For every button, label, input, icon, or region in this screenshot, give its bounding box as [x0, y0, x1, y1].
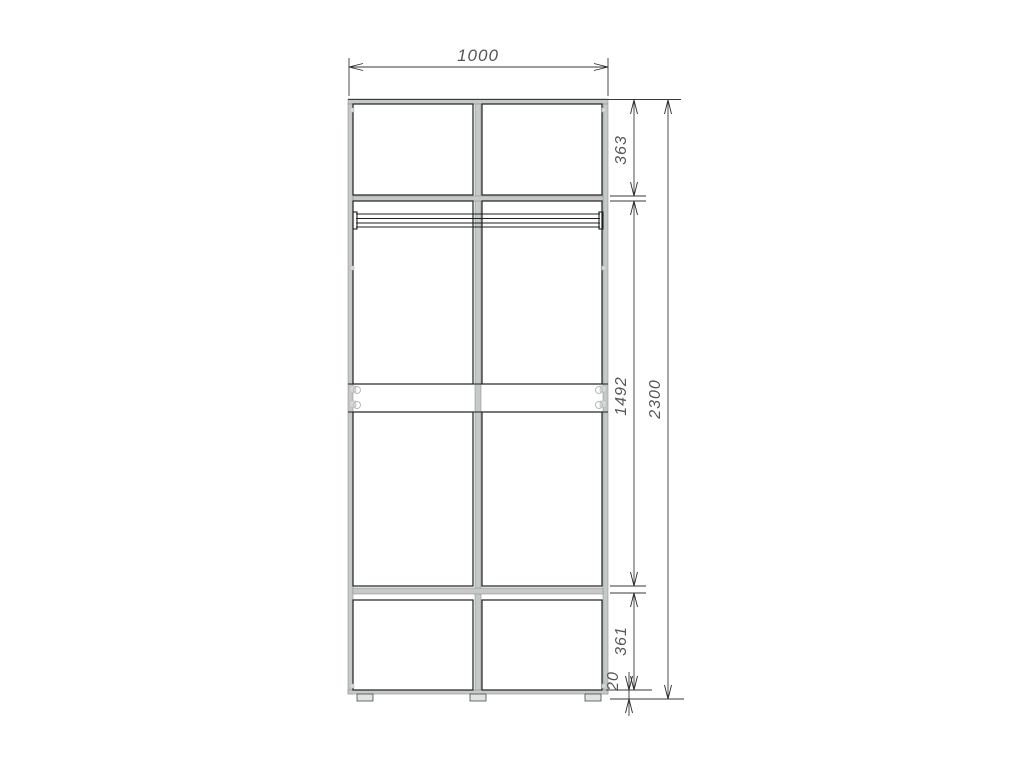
foot-center — [470, 694, 486, 701]
carcass-left-side-panel — [348, 104, 353, 694]
carcass-center-divider — [475, 104, 481, 690]
door-panel-top-right — [482, 104, 602, 195]
carcass-bottom-shelf — [353, 588, 603, 594]
drawing-canvas: 1000 363 1492 361 20 — [0, 0, 1024, 768]
dimension-overall-width: 1000 — [349, 46, 608, 96]
fitting-mark — [350, 684, 354, 688]
dimension-label-middle-section: 1492 — [613, 376, 630, 416]
dimension-overall-height-column: 2300 — [647, 100, 672, 699]
door-panel-middle-lower-left — [353, 412, 473, 586]
fitting-mark — [350, 266, 354, 270]
door-panel-middle-upper-left — [353, 201, 473, 384]
door-panel-bottom-right — [482, 600, 602, 690]
dimension-label-width: 1000 — [457, 46, 499, 65]
carcass-top-shelf — [353, 196, 603, 201]
door-panel-top-left — [353, 104, 473, 195]
fitting-mark — [602, 266, 606, 270]
dimension-label-plinth: 20 — [605, 671, 622, 692]
door-panel-middle-upper-right — [482, 201, 602, 384]
dimension-sections-column: 363 1492 361 20 — [605, 100, 638, 716]
fitting-mark — [602, 108, 606, 112]
dimension-label-top-section: 363 — [613, 135, 630, 165]
wardrobe-technical-drawing: 1000 363 1492 361 20 — [0, 0, 1024, 768]
carcass-right-side-panel — [603, 104, 608, 694]
door-panel-bottom-left — [353, 600, 473, 690]
foot-left — [357, 694, 373, 701]
wardrobe-front-view — [348, 99, 608, 701]
dimension-label-overall-height: 2300 — [647, 379, 664, 420]
door-panel-middle-lower-right — [482, 412, 602, 586]
foot-right — [585, 694, 601, 701]
dimension-label-bottom-section: 361 — [613, 626, 630, 656]
fitting-mark — [350, 108, 354, 112]
